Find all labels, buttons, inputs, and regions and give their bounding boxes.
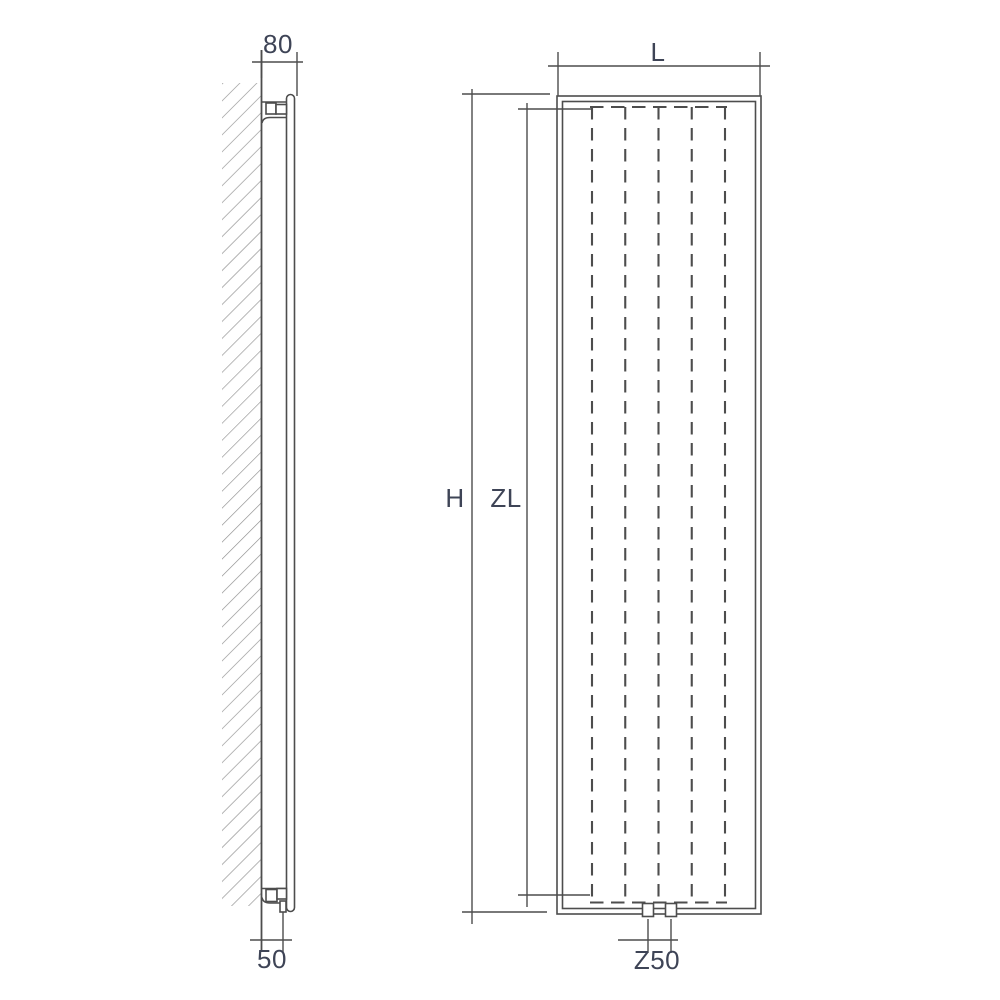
side-radiator-panel xyxy=(287,95,295,912)
dim-inner-length-label: ZL xyxy=(490,483,521,513)
front-view: L H ZL Z50 xyxy=(445,37,770,975)
bottom-pipe-stub xyxy=(280,901,286,912)
pipe-connection-left xyxy=(643,904,654,917)
technical-drawing-svg: 80 50 L xyxy=(0,0,1000,1000)
dim-width-label: L xyxy=(651,37,666,67)
pipe-connection-right xyxy=(666,904,677,917)
dim-height-label: H xyxy=(445,483,464,513)
dim-offset-label: 50 xyxy=(257,944,287,974)
dim-depth-label: 80 xyxy=(263,29,293,59)
top-bracket-hook xyxy=(262,118,287,124)
radiator-dimension-diagram: 80 50 L xyxy=(0,0,1000,1000)
dim-pipe-spacing-label: Z50 xyxy=(634,945,680,975)
wall-hatch xyxy=(222,83,262,906)
bottom-mounting-bracket xyxy=(262,889,288,913)
side-view: 80 50 xyxy=(222,29,303,974)
top-mounting-bracket xyxy=(262,102,288,123)
